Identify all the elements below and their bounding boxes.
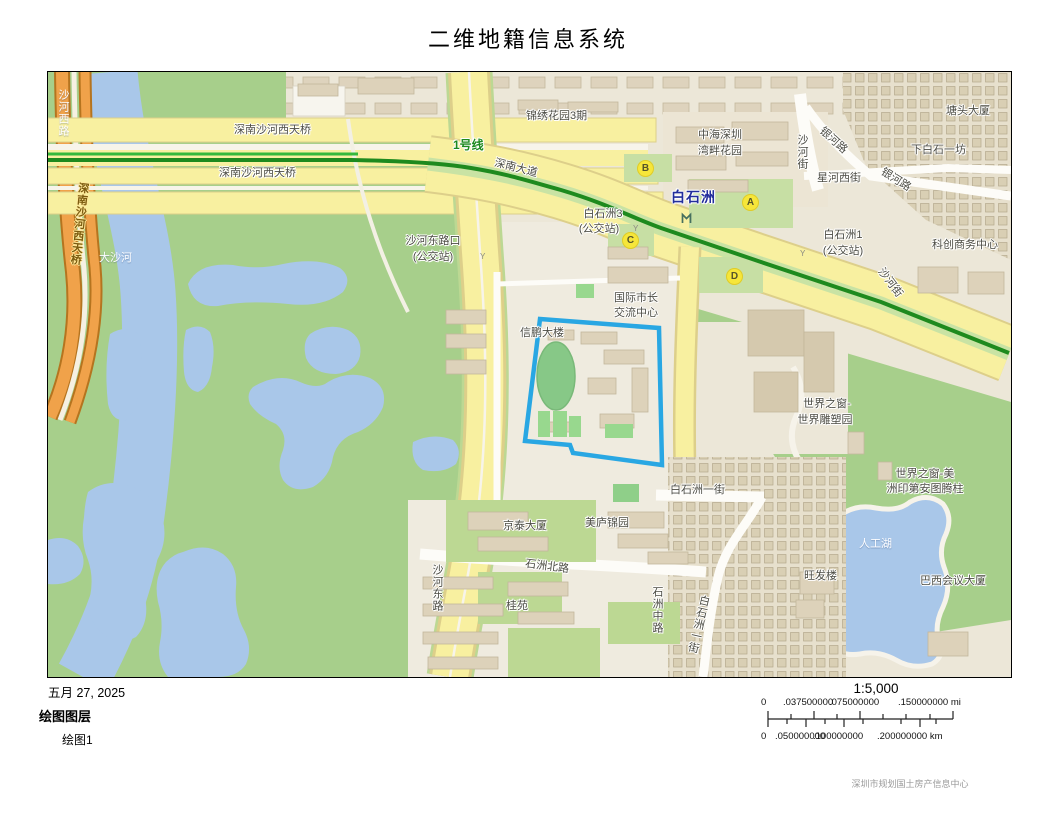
metro-exit-d: D xyxy=(726,268,743,285)
sports-field xyxy=(537,342,575,410)
metro-exit-c: C xyxy=(622,232,639,249)
scale-mi-0: 0 xyxy=(761,697,766,708)
scale-km-0: 0 xyxy=(761,731,766,742)
watermark: 深圳市规划国土房产信息中心 xyxy=(820,777,1000,790)
map-date: 五月 27, 2025 xyxy=(48,682,125,701)
scale-km-2: .100000000 xyxy=(813,731,863,742)
scale-km-3: .200000000 km xyxy=(877,731,943,742)
page-title: 二维地籍信息系统 xyxy=(0,22,1056,54)
legend-title: 绘图图层 xyxy=(39,706,91,725)
metro-exit-b: B xyxy=(637,160,654,177)
map-graphics xyxy=(48,72,1011,677)
page: 二维地籍信息系统 xyxy=(0,0,1056,816)
scale-mi-2: .075000000 xyxy=(829,697,879,708)
metro-exit-a: A xyxy=(742,194,759,211)
scale-mi-3: .150000000 mi xyxy=(898,697,961,708)
scale-ratio: 1:5,000 xyxy=(806,681,946,696)
scale-mi-1: .037500000 xyxy=(783,697,833,708)
map-canvas[interactable]: 沙河西路 深南沙河西天桥 深南沙河西天桥 深南沙河西天桥 1号线 深南大道 锦绣… xyxy=(47,71,1012,678)
legend-item-drawing1: 绘图1 xyxy=(62,731,93,748)
